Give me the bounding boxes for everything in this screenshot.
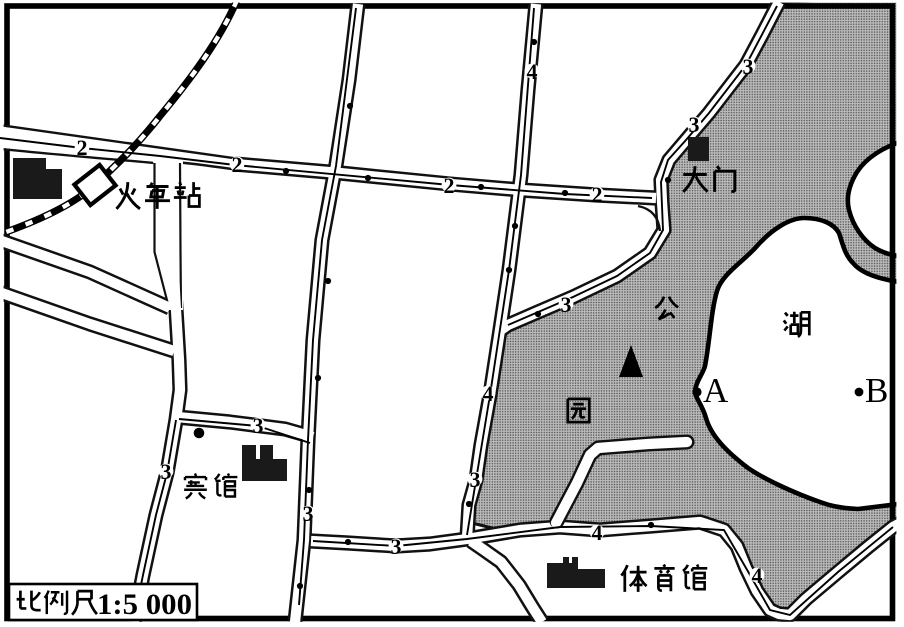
- svg-text:2: 2: [592, 182, 603, 207]
- svg-text:3: 3: [561, 292, 572, 317]
- svg-text:4: 4: [752, 563, 763, 588]
- svg-text:3: 3: [253, 413, 264, 438]
- svg-text:3: 3: [470, 467, 481, 492]
- svg-text:2: 2: [444, 173, 455, 198]
- svg-text:B: B: [865, 371, 888, 410]
- svg-text:2: 2: [77, 135, 88, 160]
- svg-text:3: 3: [743, 54, 754, 79]
- svg-text:3: 3: [689, 112, 700, 137]
- svg-text:1:5 000: 1:5 000: [97, 588, 192, 621]
- svg-text:2: 2: [232, 152, 243, 177]
- svg-text:4: 4: [483, 381, 494, 406]
- svg-text:4: 4: [527, 59, 538, 84]
- svg-text:A: A: [703, 371, 729, 410]
- svg-text:3: 3: [161, 459, 172, 484]
- svg-text:4: 4: [592, 520, 603, 545]
- svg-text:3: 3: [391, 534, 402, 559]
- svg-text:3: 3: [303, 501, 314, 526]
